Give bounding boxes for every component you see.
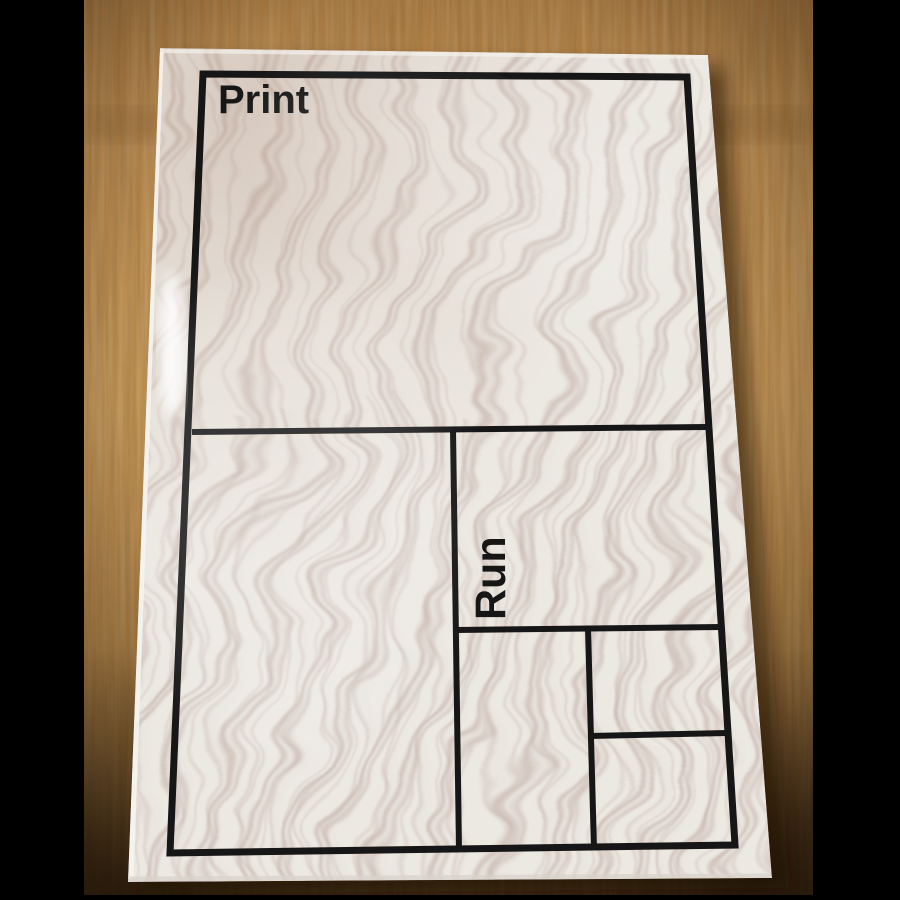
grid-line-h-right-divider: [590, 733, 727, 736]
cover-side-label: Run: [467, 536, 515, 620]
cover-edge-bottom: [129, 876, 771, 879]
photo-canvas: Print Run: [0, 0, 900, 900]
photo-frame: Print Run: [0, 0, 900, 900]
gloss-sheen-center: [145, 265, 445, 755]
photo: Print Run: [40, 0, 880, 900]
